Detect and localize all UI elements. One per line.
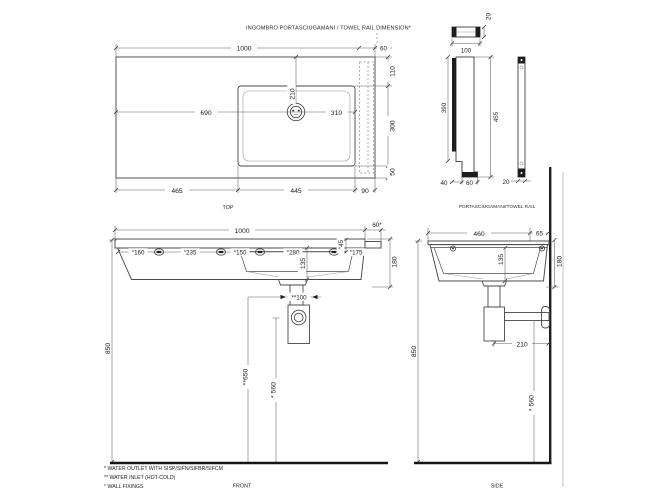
dim-rail-foot-inset: 40 bbox=[441, 180, 448, 187]
dim-front-bowl-height: 135 bbox=[300, 258, 307, 270]
trap-nut-circle bbox=[291, 310, 306, 325]
wall-escutcheon bbox=[542, 307, 550, 329]
rail-side-profile bbox=[452, 57, 478, 177]
side-slab bbox=[428, 241, 549, 245]
dim-top-back-offset: 110 bbox=[389, 66, 396, 77]
dim-front-mount-height: 850 bbox=[105, 343, 112, 355]
side-drain-trap bbox=[482, 281, 550, 341]
dim-side-total-height: 180 bbox=[557, 256, 564, 268]
top-view: 1000 60 690 310 21 bbox=[114, 43, 396, 211]
dim-top-left-section: 465 bbox=[171, 188, 183, 195]
dim-side-mount-height: 850 bbox=[411, 346, 418, 358]
dim-fixing-1: °160 bbox=[132, 250, 145, 257]
side-view: 460 65 135 180 bbox=[411, 228, 564, 490]
drawing-sheet: INGOMBRO PORTASCIUGAMANI / TOWEL RAIL DI… bbox=[0, 0, 667, 500]
note-water-inlet: ** WATER INLET (HOT-COLD) bbox=[104, 475, 176, 481]
front-drain-trap bbox=[279, 280, 310, 344]
dim-side-depth: 460 bbox=[473, 231, 485, 238]
dim-faucet-from-right: 310 bbox=[331, 110, 343, 117]
dim-front-width: 1000 bbox=[234, 228, 249, 235]
note-wall-fixings: ° WALL FIXINGS bbox=[104, 484, 144, 490]
dim-top-rail-width: 60 bbox=[380, 45, 387, 52]
dim-outlet-wall-distance: 210 bbox=[516, 341, 528, 348]
front-rail-end bbox=[365, 242, 381, 249]
dim-fixing-3: °150 bbox=[234, 250, 247, 257]
dim-inlet-spacing: **100 bbox=[291, 294, 307, 301]
dim-inlet-height: **650 bbox=[242, 368, 249, 385]
dim-faucet-from-left: 690 bbox=[200, 110, 212, 117]
dim-fixing-2: °235 bbox=[184, 250, 197, 257]
dim-top-basin-depth: 300 bbox=[389, 120, 396, 132]
front-slab bbox=[115, 239, 365, 248]
side-body bbox=[430, 245, 548, 281]
dim-side-wall-offset: 65 bbox=[536, 231, 543, 238]
dim-rail-length: 100 bbox=[461, 48, 472, 55]
dim-front-total-height: 180 bbox=[392, 256, 399, 268]
front-view-caption: FRONT bbox=[233, 484, 252, 490]
front-view: 1000 60* °160 °235 °150 °280 bbox=[105, 221, 399, 490]
dim-front-rail-overhang: 60* bbox=[372, 222, 382, 229]
dim-front-outlet-height: * 560 bbox=[270, 382, 277, 398]
dim-side-outlet-height: * 560 bbox=[528, 395, 535, 411]
outlet-pipe bbox=[505, 313, 550, 321]
dim-side-bowl-height: 135 bbox=[498, 254, 505, 266]
dim-rail-foot-width: 60 bbox=[466, 180, 473, 187]
dim-front-rim-height: °45 bbox=[338, 239, 345, 249]
dim-top-right-section: 90 bbox=[361, 188, 369, 195]
note-water-outlet: * WATER OUTLET WITH SISP/SIFN/SIFBR/SIFC… bbox=[104, 466, 223, 472]
towel-rail-caption: PORTASCIUGAMANI/TOWEL RAIL bbox=[459, 204, 536, 210]
rail-top-view bbox=[452, 27, 480, 37]
dim-fixing-5: °175 bbox=[350, 250, 363, 257]
dim-top-basin-width: 445 bbox=[290, 188, 302, 195]
dim-top-width: 1000 bbox=[236, 46, 251, 53]
drawing-title: INGOMBRO PORTASCIUGAMANI / TOWEL RAIL DI… bbox=[246, 26, 412, 32]
top-view-caption: TOP bbox=[223, 205, 234, 211]
towel-rail-detail: 20 100 390 455 40 60 bbox=[438, 13, 536, 210]
wall-section bbox=[549, 167, 563, 487]
footnotes: * WATER OUTLET WITH SISP/SIFN/SIFBR/SIFC… bbox=[104, 466, 223, 490]
dim-top-front-offset: 50 bbox=[389, 168, 396, 176]
side-view-caption: SIDE bbox=[491, 484, 504, 490]
rail-front-bar bbox=[518, 57, 525, 177]
dim-rail-upper-height: 390 bbox=[441, 102, 448, 113]
dim-rail-total-height: 455 bbox=[493, 111, 500, 122]
dim-faucet-from-back: 210 bbox=[289, 88, 296, 100]
dim-rail-bar-width: 20 bbox=[503, 179, 510, 186]
dim-rail-thickness: 20 bbox=[486, 13, 493, 20]
